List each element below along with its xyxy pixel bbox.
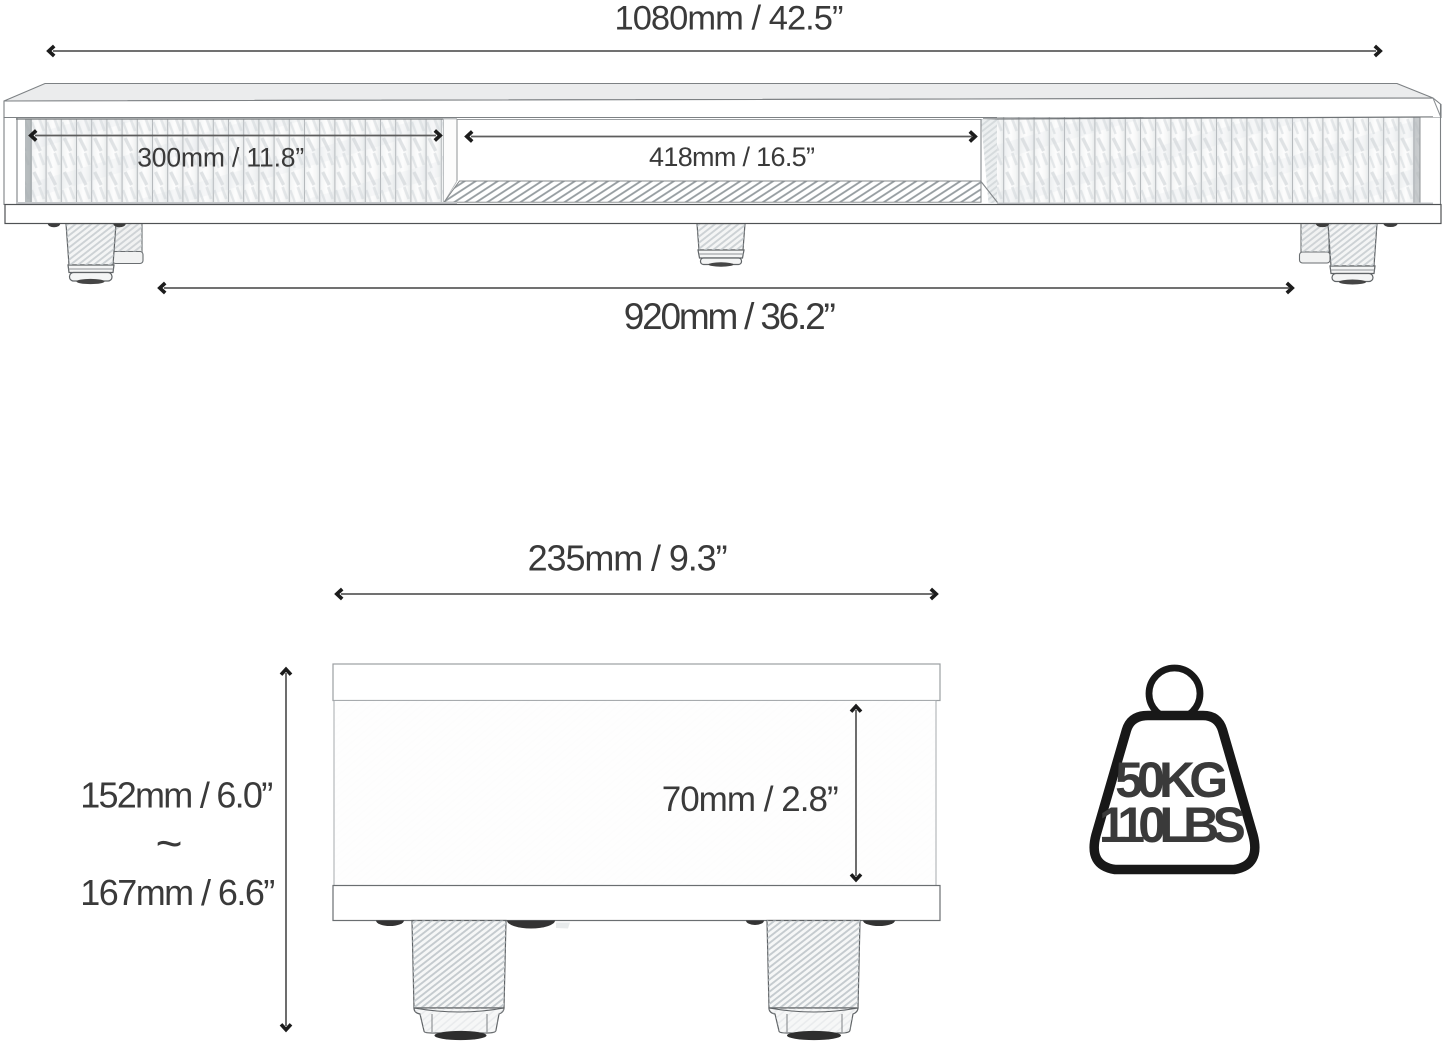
svg-text:70mm / 2.8”: 70mm / 2.8”	[662, 780, 839, 819]
svg-text:1080mm / 42.5”: 1080mm / 42.5”	[615, 0, 844, 38]
svg-text:235mm / 9.3”: 235mm / 9.3”	[528, 538, 728, 579]
svg-text:300mm / 11.8”: 300mm / 11.8”	[137, 142, 304, 172]
svg-text:110LBS: 110LBS	[1099, 797, 1246, 853]
svg-text:~: ~	[156, 817, 183, 869]
svg-text:167mm / 6.6”: 167mm / 6.6”	[80, 872, 275, 913]
svg-text:920mm / 36.2”: 920mm / 36.2”	[624, 296, 836, 337]
svg-text:418mm / 16.5”: 418mm / 16.5”	[649, 142, 815, 172]
svg-text:152mm / 6.0”: 152mm / 6.0”	[80, 775, 273, 816]
